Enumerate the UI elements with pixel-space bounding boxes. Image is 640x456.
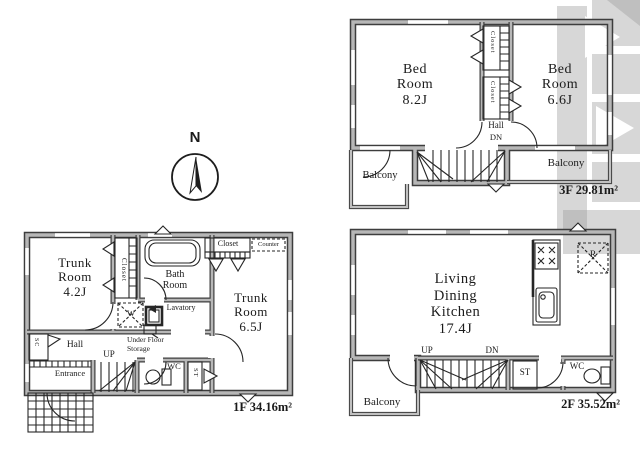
closet-label-1f-column: Closet xyxy=(120,258,128,282)
balcony-label-3f-right: Balcony xyxy=(536,157,596,169)
closet-label-1f-top: Closet xyxy=(205,240,251,249)
wc-label-1f: WC xyxy=(161,362,187,371)
vent-marker-1f-top xyxy=(155,226,171,234)
room-label-trunk-right: Trunk Room 6.5J xyxy=(214,291,288,334)
vent-marker-3f xyxy=(488,184,504,192)
hall-label-1f: Hall xyxy=(55,340,95,350)
stairs-1f xyxy=(99,362,135,392)
compass-north-label: N xyxy=(183,130,207,147)
storage-label-2f: ST xyxy=(512,368,538,378)
under-floor-storage-label: Under Floor Storage xyxy=(127,336,187,353)
bath-room-label: Bath Room xyxy=(142,269,208,291)
stairs-3f xyxy=(417,150,505,182)
toilet-1f xyxy=(146,369,171,385)
area-label-2f: 2F 35.52m² xyxy=(538,398,620,412)
lavatory-label: Lavatory xyxy=(157,304,205,313)
area-label-3f: 3F 29.81m² xyxy=(538,184,618,198)
compass-icon xyxy=(172,154,218,200)
up-label-2f: UP xyxy=(412,346,442,356)
wc-label-2f: WC xyxy=(564,362,590,372)
area-label-1f: 1F 34.16m² xyxy=(206,401,292,415)
porch xyxy=(28,393,93,432)
floorplan-page: N Bed Room 8.2J Bed Room 6.6J Closet Clo… xyxy=(0,0,640,456)
storage-label-1f: ST xyxy=(192,368,199,378)
closet-label-3f-lower: Closet xyxy=(489,81,496,104)
room-label-bedroom-right: Bed Room 6.6J xyxy=(517,62,603,108)
refrigerator-label: R xyxy=(580,250,606,260)
room-label-bedroom-left: Bed Room 8.2J xyxy=(372,62,458,108)
washer-label: W xyxy=(121,309,141,318)
balcony-label-2f: Balcony xyxy=(352,396,412,408)
closet-label-3f-upper: Closet xyxy=(489,31,496,54)
balcony-label-3f-left: Balcony xyxy=(352,170,408,182)
hall-label-3f: Hall xyxy=(474,121,518,131)
watermark-logo xyxy=(557,0,640,254)
dn-label-3f: DN xyxy=(474,133,518,142)
kitchen-counter xyxy=(533,240,560,325)
stairs-2f xyxy=(420,360,508,389)
shoe-closet-label: SC xyxy=(33,338,39,347)
entrance-label: Entrance xyxy=(42,369,98,378)
entrance-step xyxy=(29,361,91,367)
bathtub xyxy=(145,240,200,266)
room-label-trunk-left: Trunk Room 4.2J xyxy=(38,256,112,299)
up-label-1f: UP xyxy=(94,350,124,360)
dn-label-2f: DN xyxy=(477,346,507,356)
room-label-ldk: Living Dining Kitchen 17.4J xyxy=(398,271,513,337)
counter-label: Counter xyxy=(252,241,285,248)
